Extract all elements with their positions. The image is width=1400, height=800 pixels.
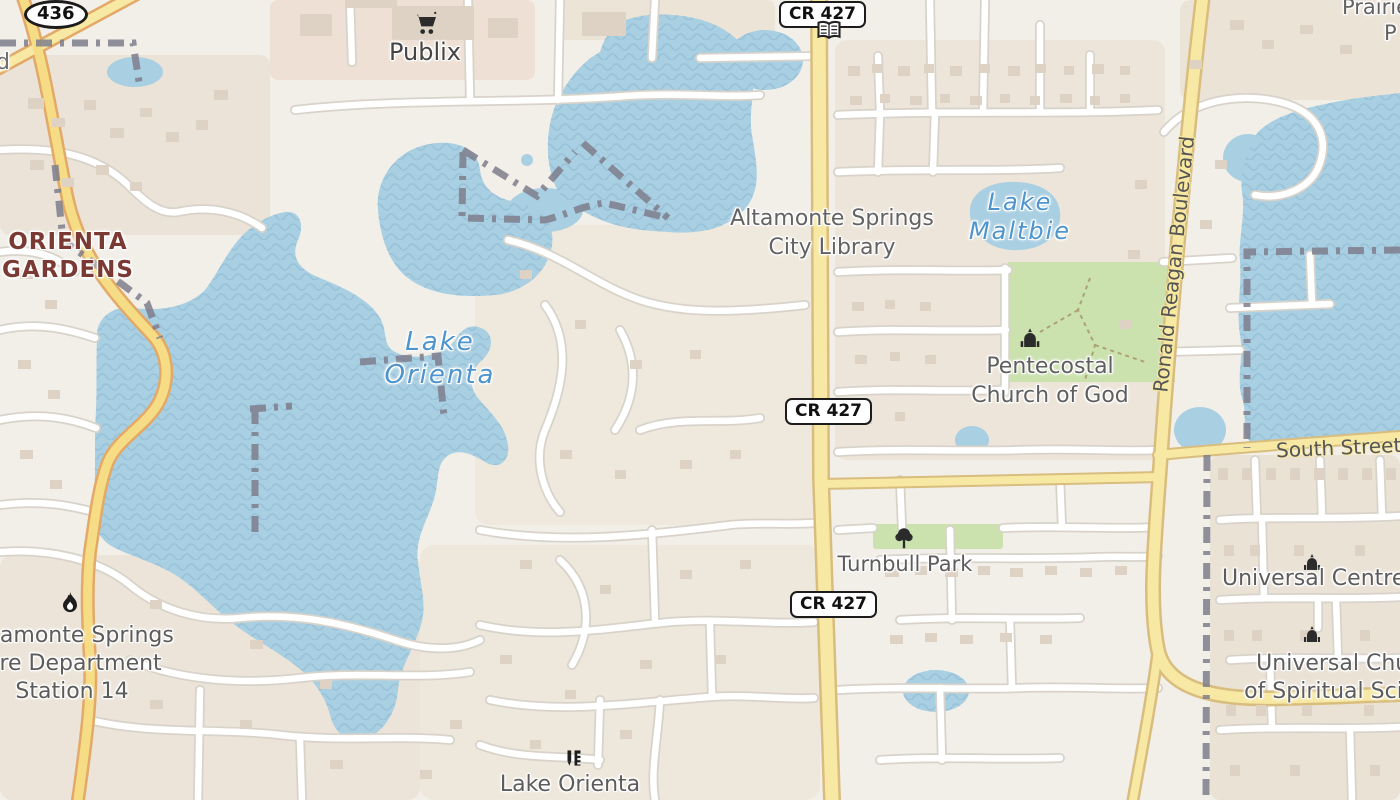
turnbull-park-label: Turnbull Park — [820, 552, 990, 578]
lake-orienta-poi-label: Lake Orienta — [480, 772, 660, 799]
school-icon — [561, 744, 587, 772]
orienta-gardens-label: ORIENTA GARDENS — [0, 228, 138, 284]
lake-maltbie-label: Lake Maltbie — [940, 188, 1100, 246]
route-badge-cr427-middle: CR 427 — [785, 398, 872, 425]
prairie-partial-label: Prairie P — [1342, 0, 1400, 46]
church-icon — [1300, 622, 1324, 650]
library-label: Altamonte Springs City Library — [700, 204, 964, 262]
fire-station-label: Altamonte Springs Fire Department Statio… — [0, 622, 232, 706]
pentecostal-label: Pentecostal Church of God — [930, 352, 1170, 410]
library-book-icon — [813, 18, 845, 46]
fire-icon — [56, 590, 84, 618]
supermarket-cart-icon — [411, 10, 439, 38]
map-canvas[interactable]: 436 CR 427 CR 427 CR 427 d Publix ORIENT… — [0, 0, 1400, 800]
church-icon — [1016, 326, 1044, 354]
tree-icon — [890, 525, 918, 553]
universal-church-label: Universal Church of Spiritual Science — [1210, 650, 1400, 706]
universal-centre-label: Universal Centre — [1222, 566, 1400, 593]
lake-orienta-label: Lake Orienta — [340, 326, 540, 392]
route-badge-cr427-bottom: CR 427 — [790, 591, 877, 618]
publix-label: Publix — [350, 38, 500, 67]
route-badge-436: 436 — [24, 0, 88, 29]
partial-road-label-d: d — [0, 50, 10, 77]
